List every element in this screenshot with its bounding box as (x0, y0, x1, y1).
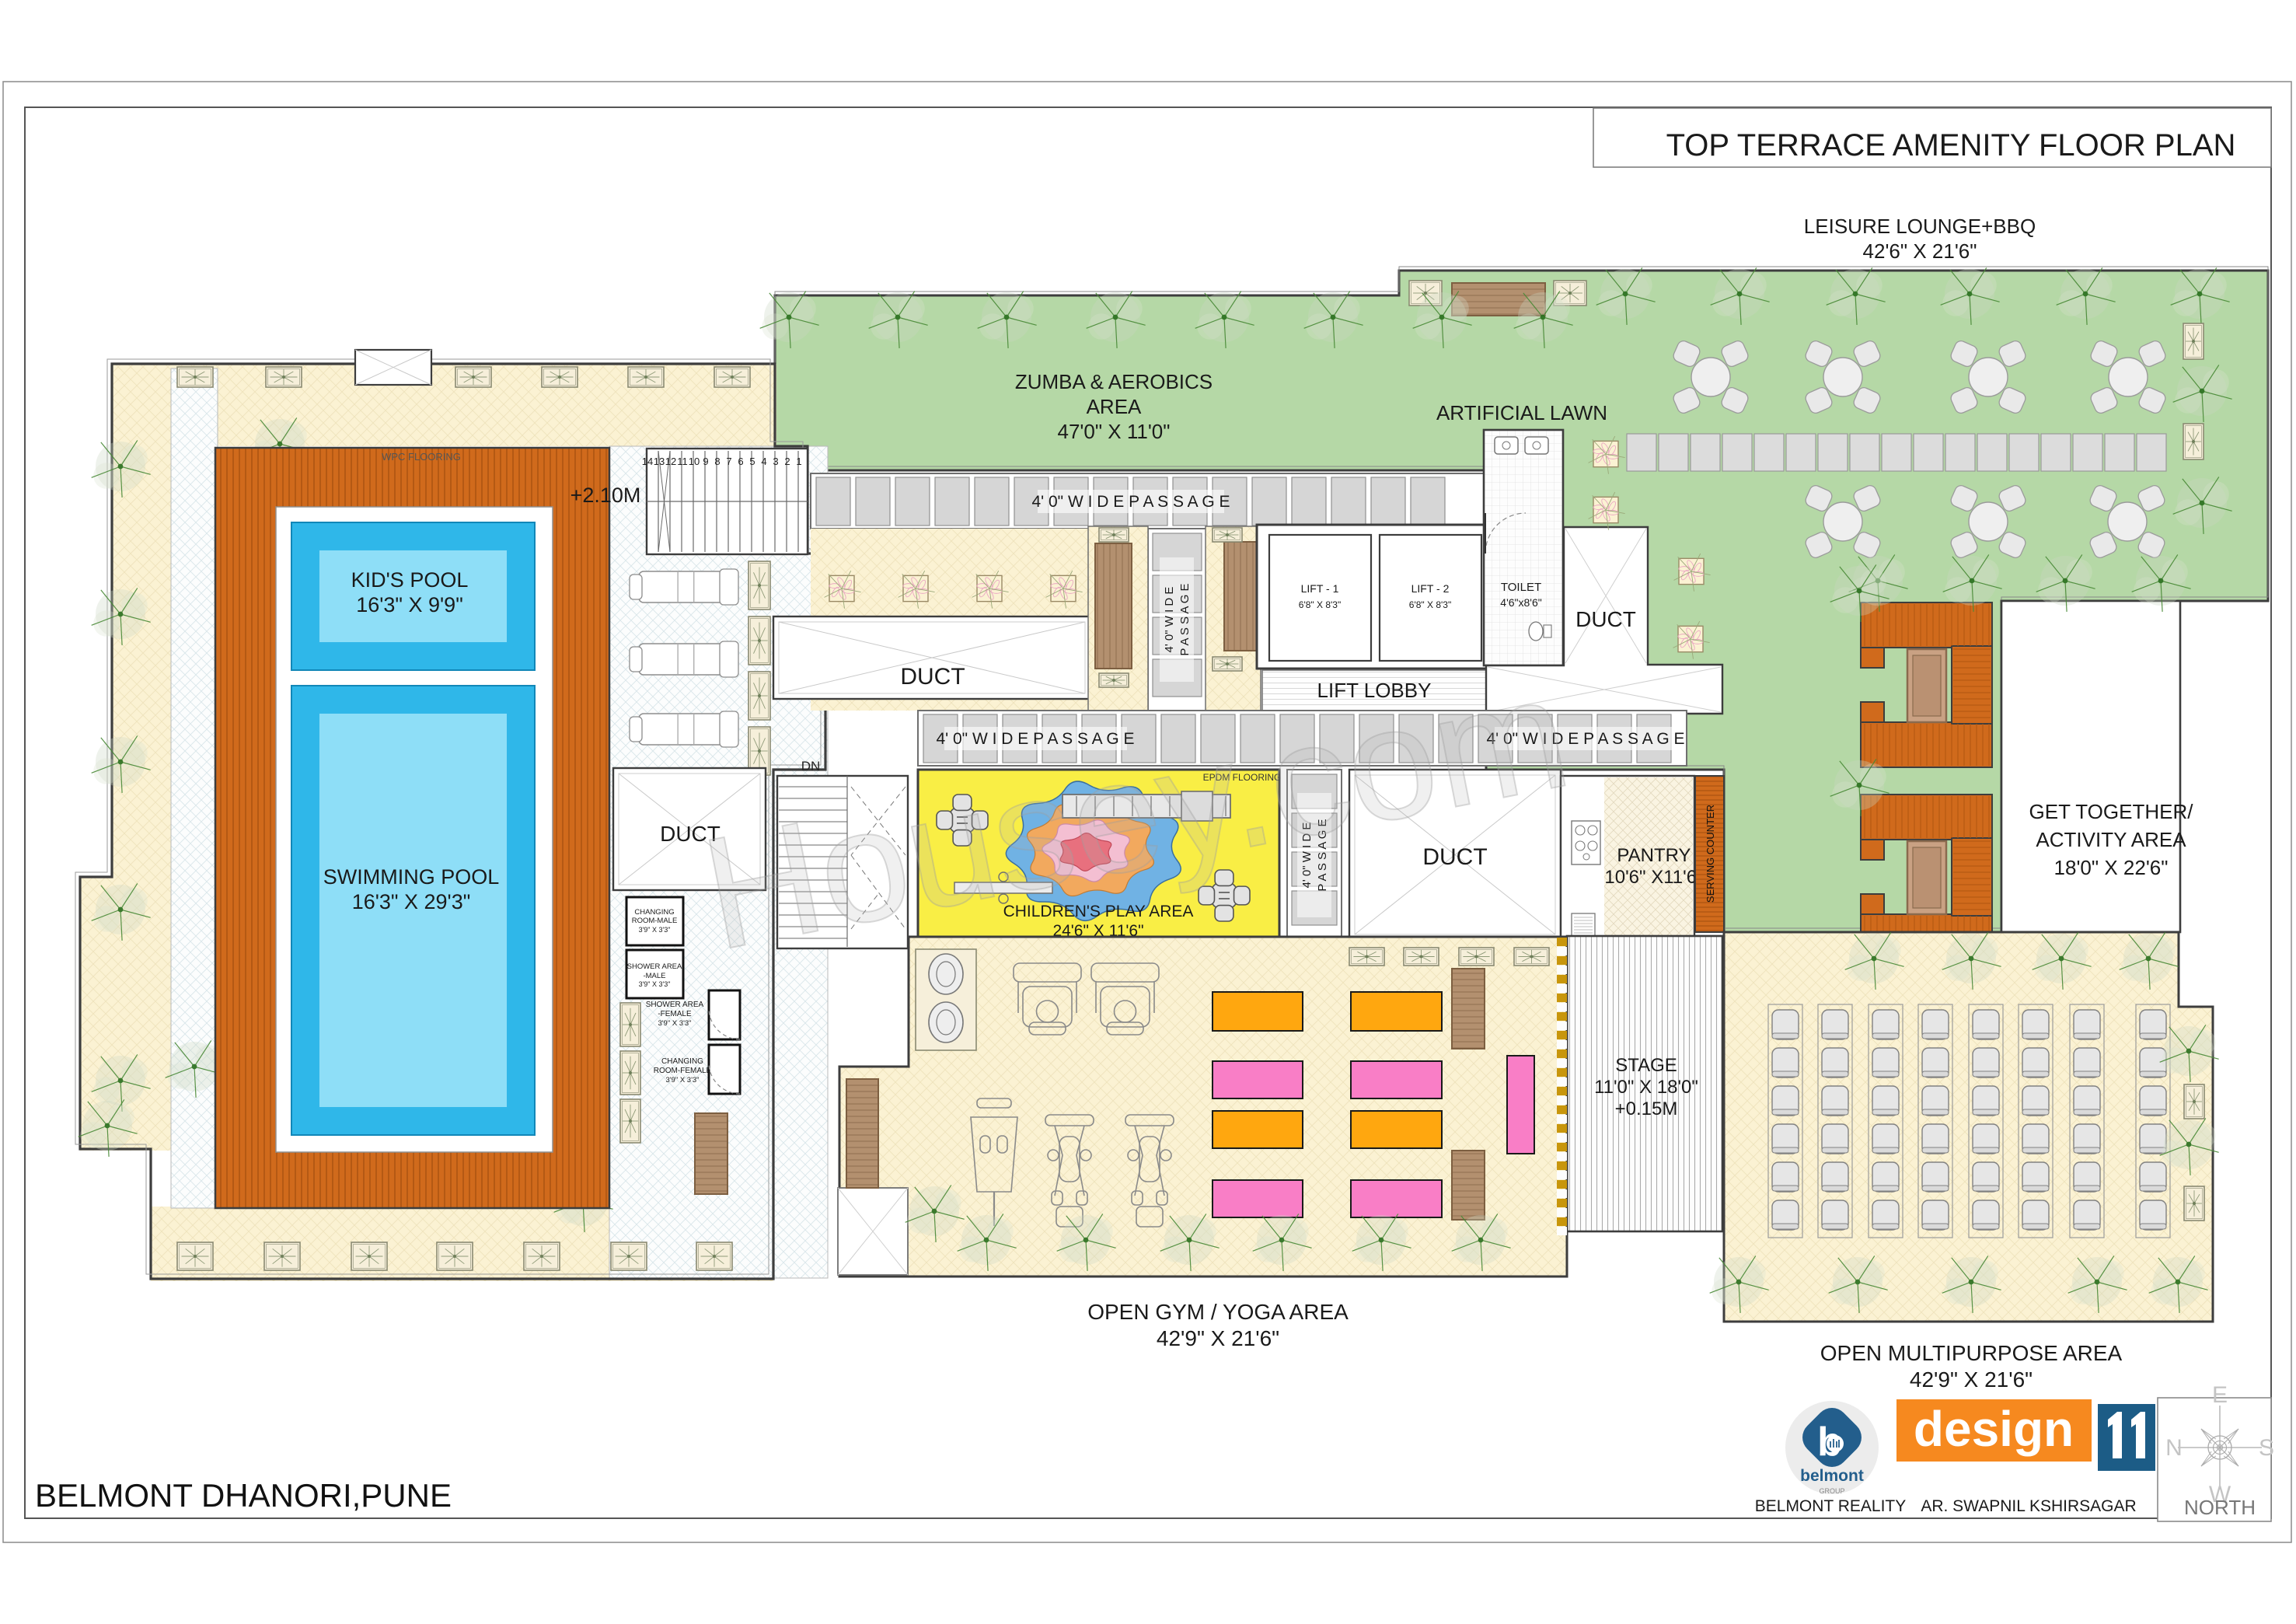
svg-text:DUCT: DUCT (1575, 607, 1636, 631)
svg-text:SHOWER AREA: SHOWER AREA (646, 1001, 704, 1009)
svg-text:-FEMALE: -FEMALE (658, 1010, 692, 1018)
svg-text:7: 7 (726, 456, 731, 467)
svg-text:E: E (2212, 1382, 2228, 1408)
svg-text:42'9" X 21'6": 42'9" X 21'6" (1157, 1326, 1279, 1350)
svg-text:-MALE: -MALE (643, 972, 665, 980)
svg-text:AR. SWAPNIL KSHIRSAGAR: AR. SWAPNIL KSHIRSAGAR (1921, 1497, 2136, 1515)
svg-text:47'0" X 11'0": 47'0" X 11'0" (1057, 420, 1170, 443)
svg-text:9: 9 (703, 456, 708, 467)
svg-text:1: 1 (796, 456, 801, 467)
svg-text:11: 11 (677, 456, 688, 467)
svg-text:LEISURE LOUNGE+BBQ: LEISURE LOUNGE+BBQ (1804, 215, 2036, 238)
svg-text:LIFT - 2: LIFT - 2 (1411, 582, 1450, 595)
svg-text:SHOWER AREA: SHOWER AREA (627, 962, 682, 971)
svg-text:NORTH: NORTH (2184, 1496, 2256, 1519)
svg-text:GROUP: GROUP (1819, 1487, 1844, 1495)
svg-text:16'3" X 29'3": 16'3" X 29'3" (352, 890, 471, 913)
svg-text:CHANGING: CHANGING (634, 908, 674, 917)
svg-text:TOILET: TOILET (1501, 581, 1541, 594)
svg-text:8: 8 (714, 456, 720, 467)
svg-text:10: 10 (689, 456, 700, 467)
svg-text:PANTRY: PANTRY (1617, 845, 1691, 866)
svg-text:LIFT - 1: LIFT - 1 (1301, 582, 1339, 595)
svg-text:AREA: AREA (1087, 395, 1142, 418)
svg-text:KID'S POOL: KID'S POOL (351, 568, 469, 592)
svg-text:4' 0" W I D E P A S S A G E: 4' 0" W I D E P A S S A G E (1031, 493, 1230, 511)
svg-text:3'9" X 3'3": 3'9" X 3'3" (658, 1019, 691, 1028)
svg-text:P A S S A G E: P A S S A G E (1178, 583, 1192, 655)
svg-text:12: 12 (665, 456, 676, 467)
svg-text:5: 5 (749, 456, 755, 467)
svg-text:2: 2 (784, 456, 790, 467)
svg-text:SWIMMING POOL: SWIMMING POOL (323, 865, 500, 889)
svg-text:GET TOGETHER/: GET TOGETHER/ (2029, 800, 2194, 823)
svg-text:DUCT: DUCT (1422, 844, 1487, 870)
svg-text:+0.15M: +0.15M (1615, 1098, 1678, 1119)
svg-text:DUCT: DUCT (900, 664, 965, 690)
svg-text:OPEN GYM / YOGA AREA: OPEN GYM / YOGA AREA (1087, 1300, 1349, 1324)
svg-text:ARTIFICIAL LAWN: ARTIFICIAL LAWN (1436, 401, 1607, 424)
svg-text:10'6" X11'6": 10'6" X11'6" (1604, 867, 1703, 888)
svg-text:3'9" X 3'3": 3'9" X 3'3" (639, 926, 671, 934)
svg-text:4: 4 (761, 456, 766, 467)
svg-text:N: N (2165, 1435, 2183, 1461)
svg-text:belmont: belmont (1800, 1467, 1864, 1485)
svg-text:OPEN MULTIPURPOSE AREA: OPEN MULTIPURPOSE AREA (1820, 1341, 2123, 1365)
svg-text:BELMONT REALITY: BELMONT REALITY (1755, 1497, 1907, 1515)
svg-text:BELMONT DHANORI,PUNE: BELMONT DHANORI,PUNE (35, 1477, 452, 1514)
svg-text:13: 13 (654, 456, 665, 467)
svg-text:ROOM-MALE: ROOM-MALE (632, 917, 678, 925)
svg-text:3'9" X 3'3": 3'9" X 3'3" (665, 1076, 699, 1084)
svg-text:6'8" X 8'3": 6'8" X 8'3" (1299, 599, 1341, 610)
svg-text:3'9" X 3'3": 3'9" X 3'3" (639, 980, 671, 988)
svg-text:STAGE: STAGE (1615, 1055, 1677, 1076)
svg-text:4'6"x8'6": 4'6"x8'6" (1500, 596, 1541, 609)
svg-text:WPC FLOORING: WPC FLOORING (382, 451, 461, 463)
svg-text:CHANGING: CHANGING (661, 1057, 703, 1066)
svg-text:SERVING COUNTER: SERVING COUNTER (1705, 805, 1716, 903)
svg-text:6'8" X 8'3": 6'8" X 8'3" (1409, 599, 1451, 610)
svg-text:42'6" X 21'6": 42'6" X 21'6" (1863, 239, 1977, 263)
svg-text:+2.10M: +2.10M (571, 484, 641, 507)
svg-text:3: 3 (773, 456, 778, 467)
svg-text:11'0" X 18'0": 11'0" X 18'0" (1594, 1077, 1698, 1098)
svg-text:ZUMBA & AEROBICS: ZUMBA & AEROBICS (1015, 370, 1213, 393)
svg-text:4' 0" W I D E: 4' 0" W I D E (1163, 587, 1176, 653)
svg-text:18'0" X 22'6": 18'0" X 22'6" (2054, 856, 2169, 879)
svg-text:14: 14 (642, 456, 653, 467)
svg-text:S: S (2259, 1435, 2274, 1461)
svg-text:42'9" X 21'6": 42'9" X 21'6" (1910, 1367, 2033, 1392)
svg-text:ACTIVITY AREA: ACTIVITY AREA (2036, 828, 2186, 851)
svg-text:ROOM-FEMALE: ROOM-FEMALE (654, 1067, 712, 1075)
svg-text:design: design (1914, 1401, 2074, 1457)
svg-text:DN: DN (801, 759, 821, 774)
svg-text:16'3" X 9'9": 16'3" X 9'9" (356, 593, 463, 616)
svg-text:TOP TERRACE AMENITY FLOOR PLAN: TOP TERRACE AMENITY FLOOR PLAN (1666, 128, 2236, 162)
svg-text:6: 6 (738, 456, 743, 467)
